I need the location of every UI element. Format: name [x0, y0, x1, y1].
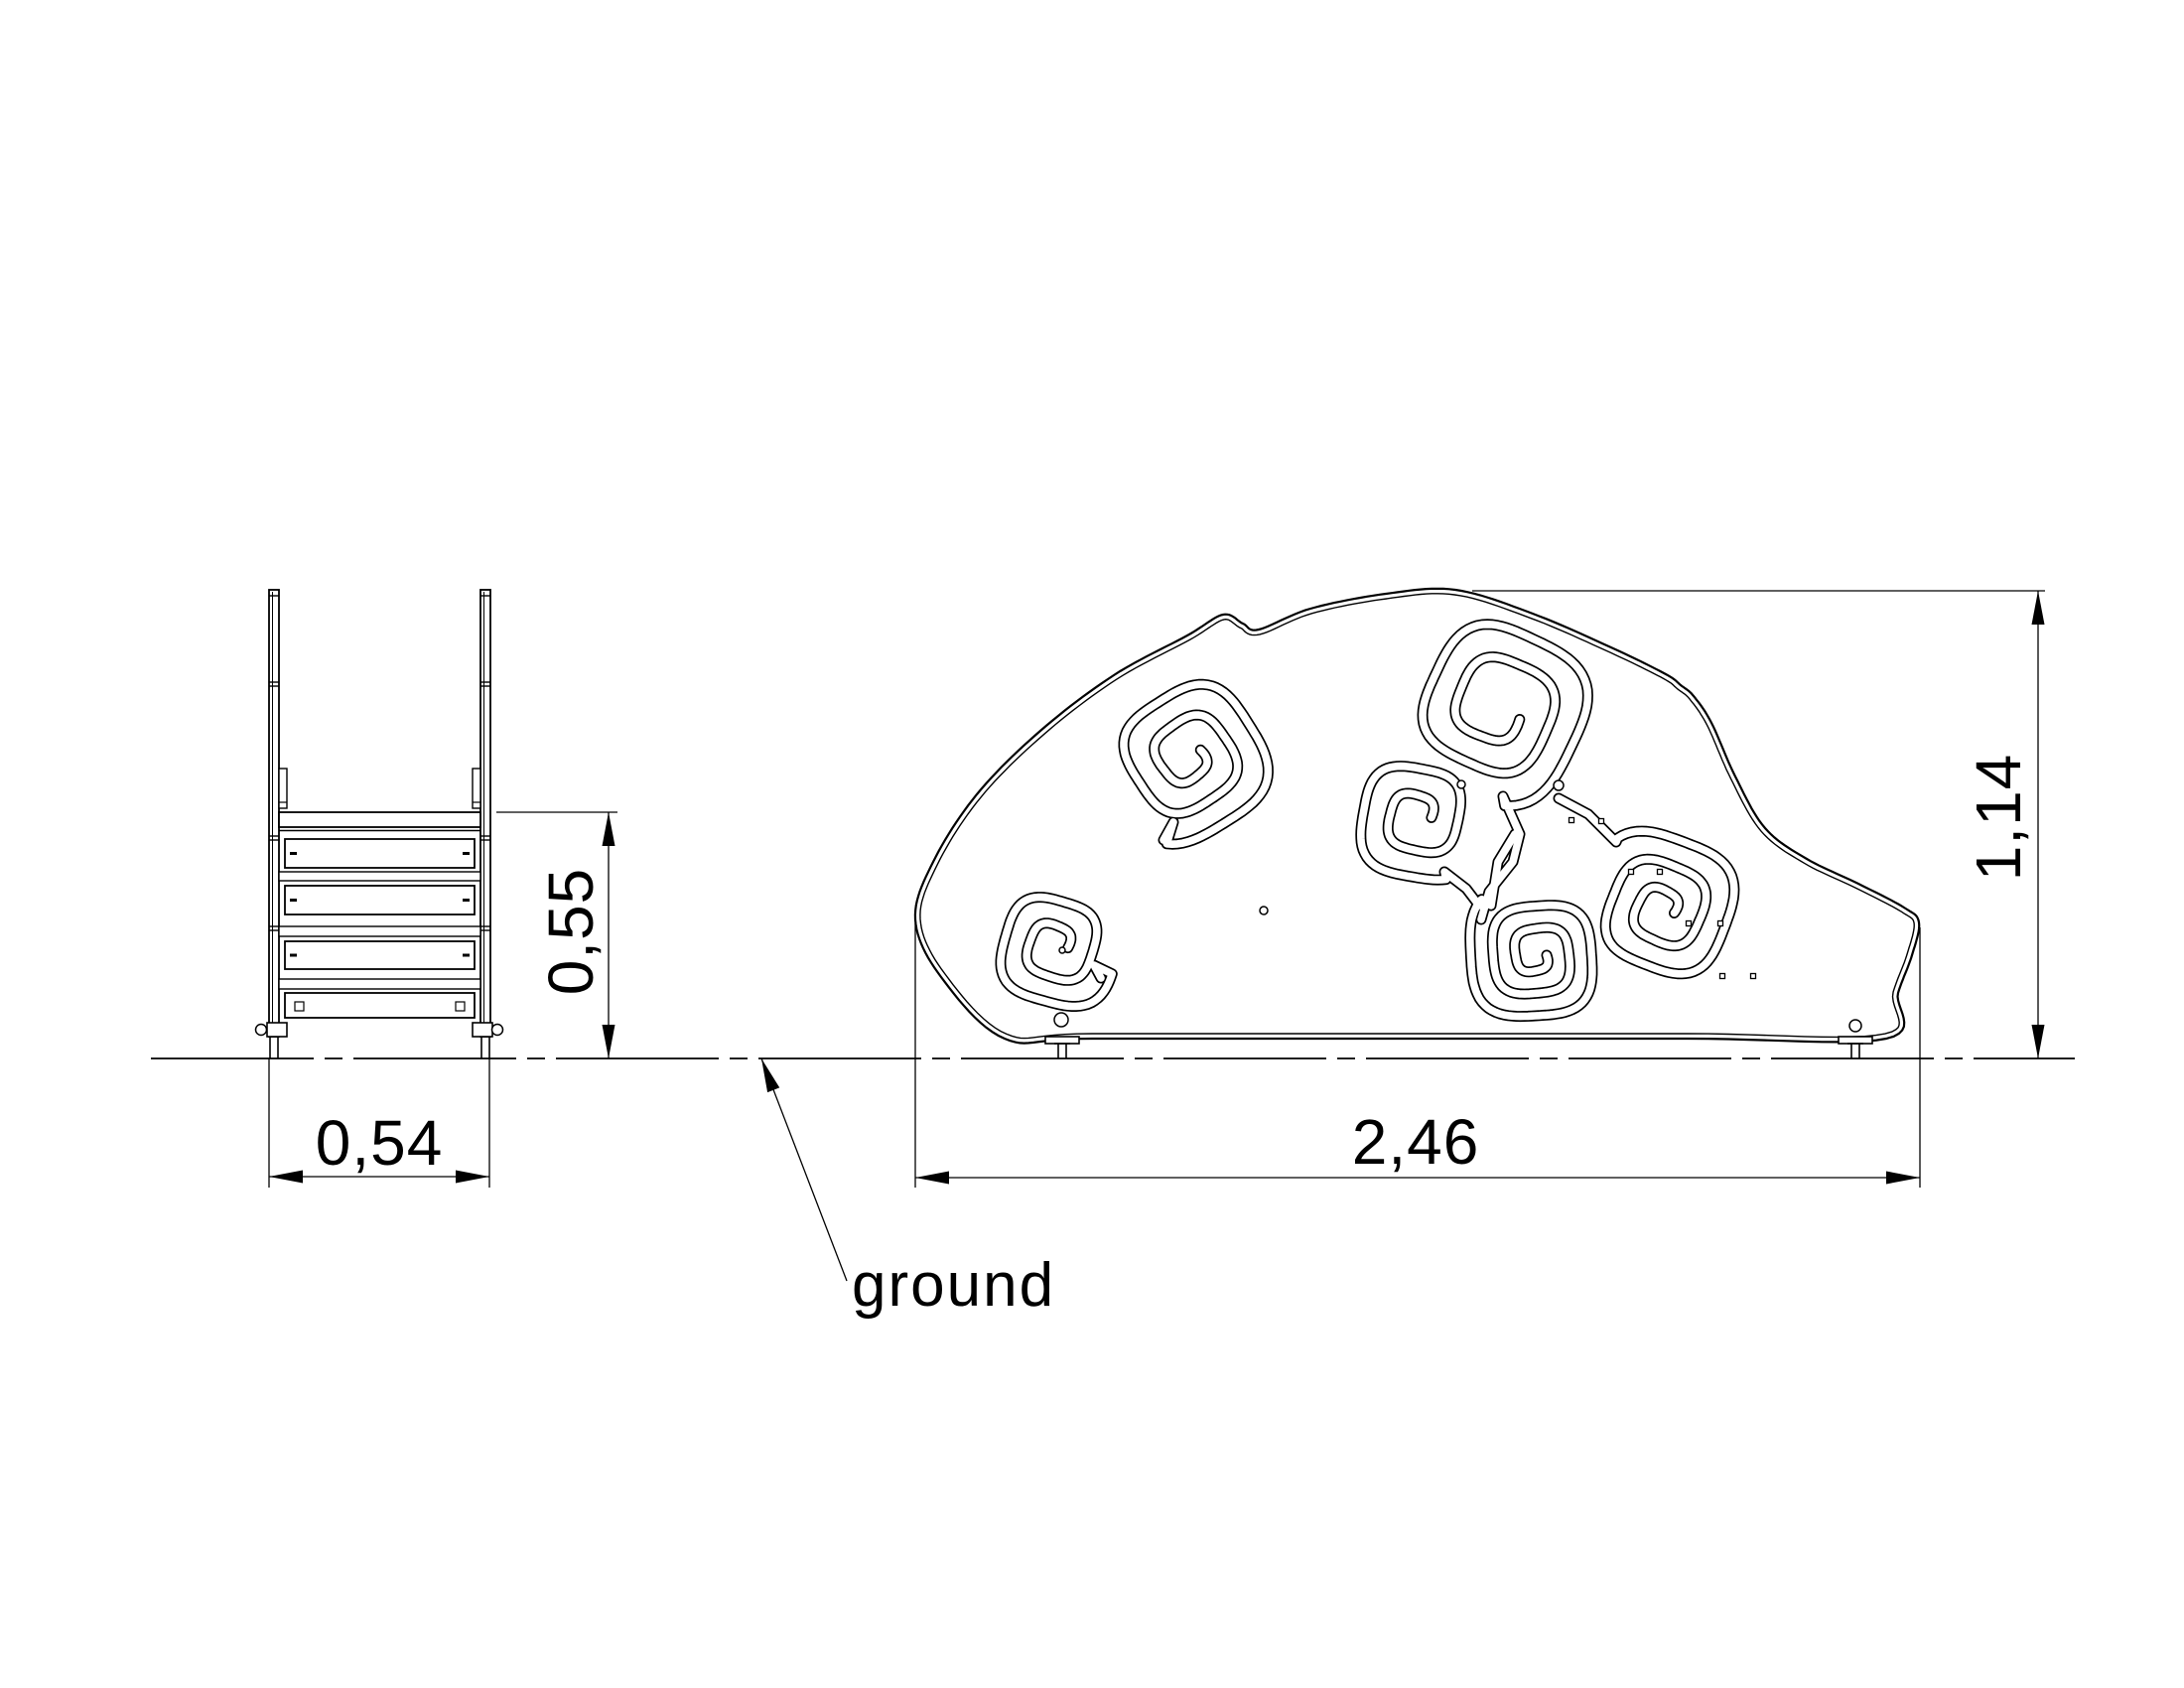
- side-view-panel-group: [915, 589, 1919, 1058]
- dimension-arrowhead: [456, 1171, 489, 1184]
- handrail-post: [480, 590, 490, 1037]
- panel-hole: [1849, 1020, 1861, 1032]
- slat-end-mark: [463, 899, 470, 902]
- panel-hole: [1054, 1013, 1068, 1027]
- dimension-value-width-0-54: 0,54: [316, 1107, 444, 1179]
- bottom-slat-hole: [456, 1002, 465, 1011]
- panel-hole-square: [1720, 974, 1725, 979]
- panel-hole-square: [1658, 870, 1663, 875]
- end-view-group: [256, 590, 503, 1058]
- thin-rail: [279, 926, 480, 936]
- panel-hole: [1457, 780, 1465, 788]
- panel-foot-bar: [1839, 1037, 1872, 1044]
- technical-drawing: 0,54 0,55 2,46 1,14 ground: [0, 0, 2184, 1688]
- slat-end-mark: [290, 852, 297, 855]
- ground-label: ground: [852, 1251, 1055, 1320]
- post-foot-plate: [267, 1023, 287, 1037]
- panel-foot-bar: [1045, 1037, 1079, 1044]
- handrail-post: [269, 590, 279, 1037]
- dimension-arrowhead: [1886, 1172, 1920, 1185]
- slat-end-mark: [463, 852, 470, 855]
- ground-leader-arrowhead: [761, 1058, 779, 1092]
- dimension-value-height-1-14: 1,14: [1963, 754, 2034, 882]
- panel-hole-square: [1687, 921, 1692, 926]
- dimension-arrowhead: [2032, 1025, 2045, 1058]
- dimension-value-height-0-55: 0,55: [535, 868, 607, 996]
- rung-slat: [285, 839, 475, 868]
- panel-hole-square: [1629, 870, 1634, 875]
- dimension-arrowhead: [269, 1171, 303, 1184]
- thin-rail: [279, 979, 480, 989]
- slat-end-mark: [463, 954, 470, 957]
- dimension-value-length-2-46: 2,46: [1352, 1106, 1480, 1178]
- panel-hole-square: [1718, 921, 1723, 926]
- ground-leader-line: [761, 1058, 847, 1281]
- foot-bolt-circle: [256, 1025, 267, 1036]
- dimension-arrowhead: [2032, 591, 2045, 625]
- bottom-slat: [285, 993, 475, 1018]
- panel-hole: [1554, 780, 1564, 790]
- slat-end-mark: [290, 899, 297, 902]
- dimension-arrowhead: [603, 1025, 615, 1058]
- slat-end-mark: [290, 954, 297, 957]
- panel-hole: [1059, 947, 1065, 953]
- rung-slat: [285, 941, 475, 969]
- panel-hole: [1260, 907, 1268, 914]
- dimension-arrowhead: [915, 1172, 949, 1185]
- foot-bolt-circle: [492, 1025, 503, 1036]
- dimension-arrowhead: [603, 812, 615, 846]
- drawing-canvas: 0,54 0,55 2,46 1,14 ground: [0, 0, 2184, 1688]
- bottom-slat-hole: [295, 1002, 304, 1011]
- top-rail: [279, 812, 480, 827]
- thin-rail: [279, 872, 480, 881]
- panel-hole-square: [1599, 819, 1604, 824]
- panel-hole-square: [1751, 974, 1756, 979]
- panel-hole-square: [1570, 818, 1574, 823]
- rung-slat: [285, 886, 475, 914]
- post-foot-plate: [473, 1023, 492, 1037]
